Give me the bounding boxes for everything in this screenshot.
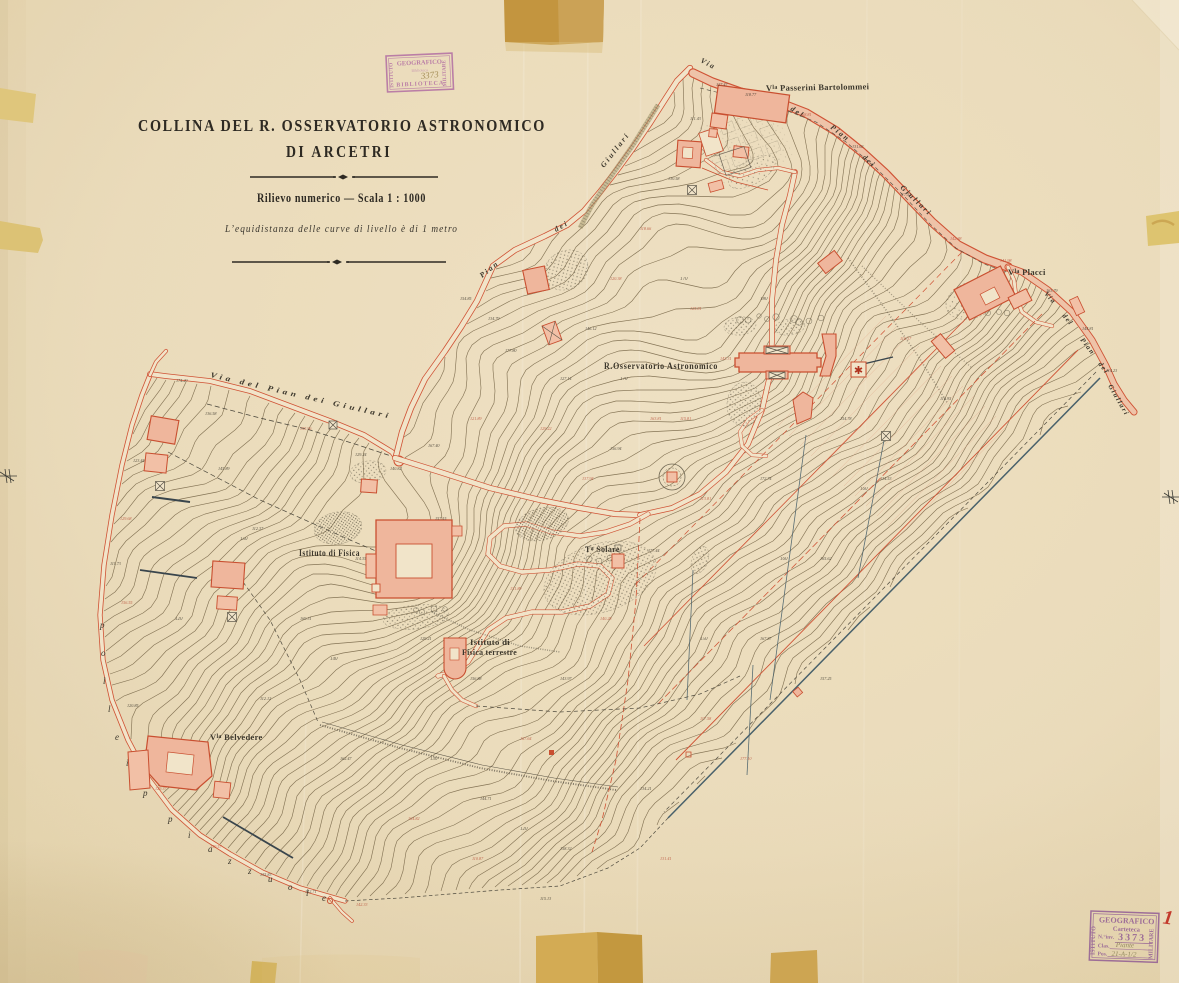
- svg-text:142.71: 142.71: [305, 889, 317, 894]
- svg-text:116.95: 116.95: [940, 396, 951, 401]
- svg-text:112.12: 112.12: [260, 696, 271, 701]
- svg-text:140.82: 140.82: [390, 466, 402, 471]
- svg-text:114.35: 114.35: [355, 556, 366, 561]
- svg-text:o: o: [288, 882, 293, 892]
- svg-text:z: z: [247, 866, 252, 876]
- svg-text:129.68: 129.68: [120, 516, 132, 521]
- svg-text:117.58: 117.58: [700, 716, 712, 721]
- svg-text:131.89: 131.89: [510, 586, 522, 591]
- svg-text:177.44: 177.44: [648, 548, 660, 553]
- svg-text:145.89: 145.89: [218, 466, 230, 471]
- svg-text:129.22: 129.22: [540, 426, 552, 431]
- svg-text:167.40: 167.40: [428, 443, 440, 448]
- svg-text:144.71: 144.71: [480, 796, 492, 801]
- svg-text:118.77: 118.77: [745, 92, 757, 97]
- svg-text:170: 170: [680, 277, 688, 282]
- svg-text:167.64: 167.64: [520, 736, 532, 741]
- svg-text:144.81: 144.81: [1082, 326, 1094, 331]
- svg-text:ISTITUTO: ISTITUTO: [1090, 926, 1097, 955]
- svg-text:177.80: 177.80: [505, 348, 517, 353]
- svg-text:Fisica terrestre: Fisica terrestre: [462, 647, 517, 657]
- svg-text:163.81: 163.81: [650, 416, 662, 421]
- svg-text:130: 130: [430, 757, 438, 762]
- svg-text:Clas.: Clas.: [1098, 943, 1111, 949]
- svg-text:DI ARCETRI: DI ARCETRI: [286, 142, 392, 161]
- svg-text:168.81: 168.81: [800, 112, 812, 117]
- svg-text:e: e: [322, 893, 326, 903]
- svg-text:127.14: 127.14: [560, 376, 572, 381]
- svg-text:z: z: [227, 856, 232, 866]
- svg-text:156.94: 156.94: [610, 446, 622, 451]
- svg-text:174.20: 174.20: [176, 378, 188, 383]
- svg-text:112.37: 112.37: [252, 526, 264, 531]
- svg-text:160: 160: [860, 487, 868, 492]
- svg-text:Rilievo numerico — Scala 1 : 1: Rilievo numerico — Scala 1 : 1000: [257, 191, 426, 205]
- svg-text:e: e: [115, 732, 119, 742]
- svg-text:146.12: 146.12: [585, 326, 597, 331]
- svg-text:129.24: 129.24: [355, 452, 367, 457]
- svg-text:R.Osservatorio Astronomico: R.Osservatorio Astronomico: [604, 362, 718, 372]
- svg-text:131.63: 131.63: [852, 144, 864, 149]
- svg-text:120.85: 120.85: [127, 703, 139, 708]
- svg-text:157.15: 157.15: [435, 516, 447, 521]
- svg-text:136.58: 136.58: [205, 411, 217, 416]
- svg-text:p: p: [99, 620, 105, 630]
- svg-text:154.78: 154.78: [840, 416, 852, 421]
- svg-text:120: 120: [175, 617, 183, 622]
- svg-text:150: 150: [700, 637, 708, 642]
- svg-text:155.96: 155.96: [300, 426, 312, 431]
- svg-text:140.28: 140.28: [600, 616, 612, 621]
- svg-text:Piante: Piante: [1115, 941, 1135, 950]
- svg-text:134.21: 134.21: [640, 786, 652, 791]
- svg-text:125.81: 125.81: [690, 306, 702, 311]
- svg-text:142.88: 142.88: [950, 236, 962, 241]
- svg-text:120: 120: [520, 827, 528, 832]
- svg-text:140: 140: [330, 657, 338, 662]
- svg-text:Vla Placci: Vla Placci: [1008, 267, 1046, 277]
- svg-text:MILITARE: MILITARE: [1148, 928, 1155, 959]
- svg-text:165.62: 165.62: [820, 556, 832, 561]
- svg-text:115.13: 115.13: [540, 896, 551, 901]
- svg-text:156.55: 156.55: [121, 600, 133, 605]
- svg-text:164.82: 164.82: [408, 816, 420, 821]
- svg-text:129.37: 129.37: [155, 786, 167, 791]
- svg-text:163.79: 163.79: [1046, 288, 1058, 293]
- svg-text:170: 170: [620, 377, 628, 382]
- svg-text:111.73: 111.73: [110, 561, 121, 566]
- svg-text:p: p: [142, 788, 148, 798]
- svg-text:154.85: 154.85: [460, 296, 472, 301]
- svg-text:L’equidistanza delle curve di: L’equidistanza delle curve di livello è …: [224, 224, 458, 235]
- svg-text:134.53: 134.53: [880, 476, 892, 481]
- svg-text:117.53: 117.53: [900, 192, 911, 197]
- svg-text:110.87: 110.87: [472, 856, 484, 861]
- svg-text:127.47: 127.47: [716, 82, 728, 87]
- svg-text:137.94: 137.94: [582, 476, 594, 481]
- svg-text:115.81: 115.81: [680, 416, 691, 421]
- svg-text:118.66: 118.66: [640, 226, 652, 231]
- svg-text:177.10: 177.10: [740, 756, 752, 761]
- svg-text:MILITARE: MILITARE: [441, 59, 448, 86]
- svg-text:Istituto di: Istituto di: [470, 637, 510, 647]
- svg-text:129.21: 129.21: [420, 636, 432, 641]
- svg-text:121.89: 121.89: [470, 416, 482, 421]
- svg-text:131.41: 131.41: [660, 856, 672, 861]
- svg-text:142.33: 142.33: [356, 902, 368, 907]
- svg-text:141.98: 141.98: [1000, 258, 1012, 263]
- svg-text:p: p: [167, 814, 173, 824]
- svg-text:143.31: 143.31: [720, 356, 732, 361]
- svg-text:COLLINA DEL R. OSSERVATORIO AS: COLLINA DEL R. OSSERVATORIO ASTRONOMICO: [138, 116, 546, 135]
- svg-text:120.38: 120.38: [610, 276, 622, 281]
- svg-text:113.81: 113.81: [700, 496, 711, 501]
- svg-text:150: 150: [240, 537, 248, 542]
- svg-text:139.57: 139.57: [210, 844, 222, 849]
- svg-text:o: o: [101, 648, 106, 658]
- svg-text:135.83: 135.83: [260, 872, 272, 877]
- svg-text:ISTITUTO: ISTITUTO: [388, 63, 395, 88]
- svg-text:21-A-1/2: 21-A-1/2: [1111, 950, 1137, 959]
- svg-text:✱: ✱: [854, 365, 863, 377]
- svg-text:111.43: 111.43: [690, 116, 701, 121]
- svg-text:156.88: 156.88: [470, 676, 482, 681]
- svg-text:172.74: 172.74: [760, 476, 772, 481]
- svg-text:162.47: 162.47: [340, 756, 352, 761]
- svg-text:Istituto di Fisica: Istituto di Fisica: [299, 548, 360, 558]
- svg-text:160: 160: [780, 557, 788, 562]
- svg-text:130.58: 130.58: [668, 176, 680, 181]
- svg-text:N.°inv.: N.°inv.: [1098, 933, 1115, 941]
- svg-text:169.31: 169.31: [300, 616, 312, 621]
- svg-text:123.44: 123.44: [133, 458, 145, 463]
- svg-text:116.37: 116.37: [900, 336, 912, 341]
- svg-text:Ta Solare: Ta Solare: [585, 545, 620, 554]
- svg-text:Vla Passerini Bartolommei: Vla Passerini Bartolommei: [766, 81, 870, 93]
- svg-text:158.32: 158.32: [560, 846, 572, 851]
- svg-text:180: 180: [760, 297, 768, 302]
- svg-text:Pos.: Pos.: [1097, 951, 1107, 957]
- svg-text:157.25: 157.25: [820, 676, 832, 681]
- svg-text:134.79: 134.79: [488, 316, 500, 321]
- svg-text:114.23: 114.23: [1106, 368, 1117, 373]
- svg-text:167.87: 167.87: [760, 636, 772, 641]
- svg-text:143.97: 143.97: [560, 676, 572, 681]
